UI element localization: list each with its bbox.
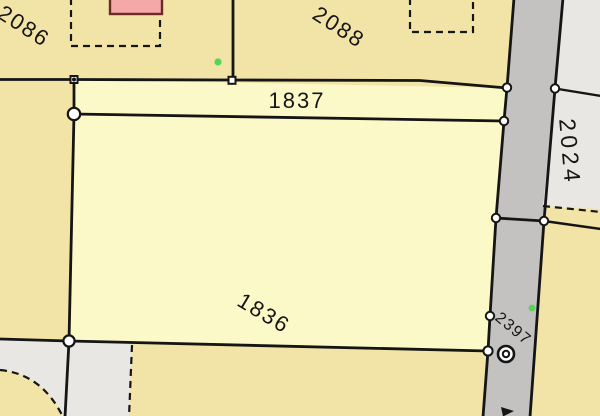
white-dot-icon (503, 83, 511, 91)
white-dot-icon (63, 335, 74, 346)
white-dot-icon (68, 108, 80, 120)
cadastral-map-canvas: 2086 2088 1837 1836 2024 2397 (0, 0, 600, 416)
white-dot-icon (486, 312, 494, 320)
green-dot-icon (214, 58, 221, 65)
green-dot-icon (529, 305, 536, 312)
parcel-label-1837: 1837 (269, 88, 326, 113)
boundary-left-parcel-bottom (0, 339, 69, 341)
white-dot-icon (540, 217, 548, 225)
building-footprint[interactable] (110, 0, 162, 14)
white-square-icon (229, 77, 236, 84)
white-dot-icon (500, 117, 508, 125)
double-circle-icon (498, 346, 514, 362)
white-dot-icon (483, 346, 492, 355)
white-dot-icon (551, 84, 559, 92)
cadastral-map-viewport[interactable]: 2086 2088 1837 1836 2024 2397 (0, 0, 600, 416)
node-dot-icon (73, 79, 75, 81)
white-dot-icon (492, 214, 500, 222)
